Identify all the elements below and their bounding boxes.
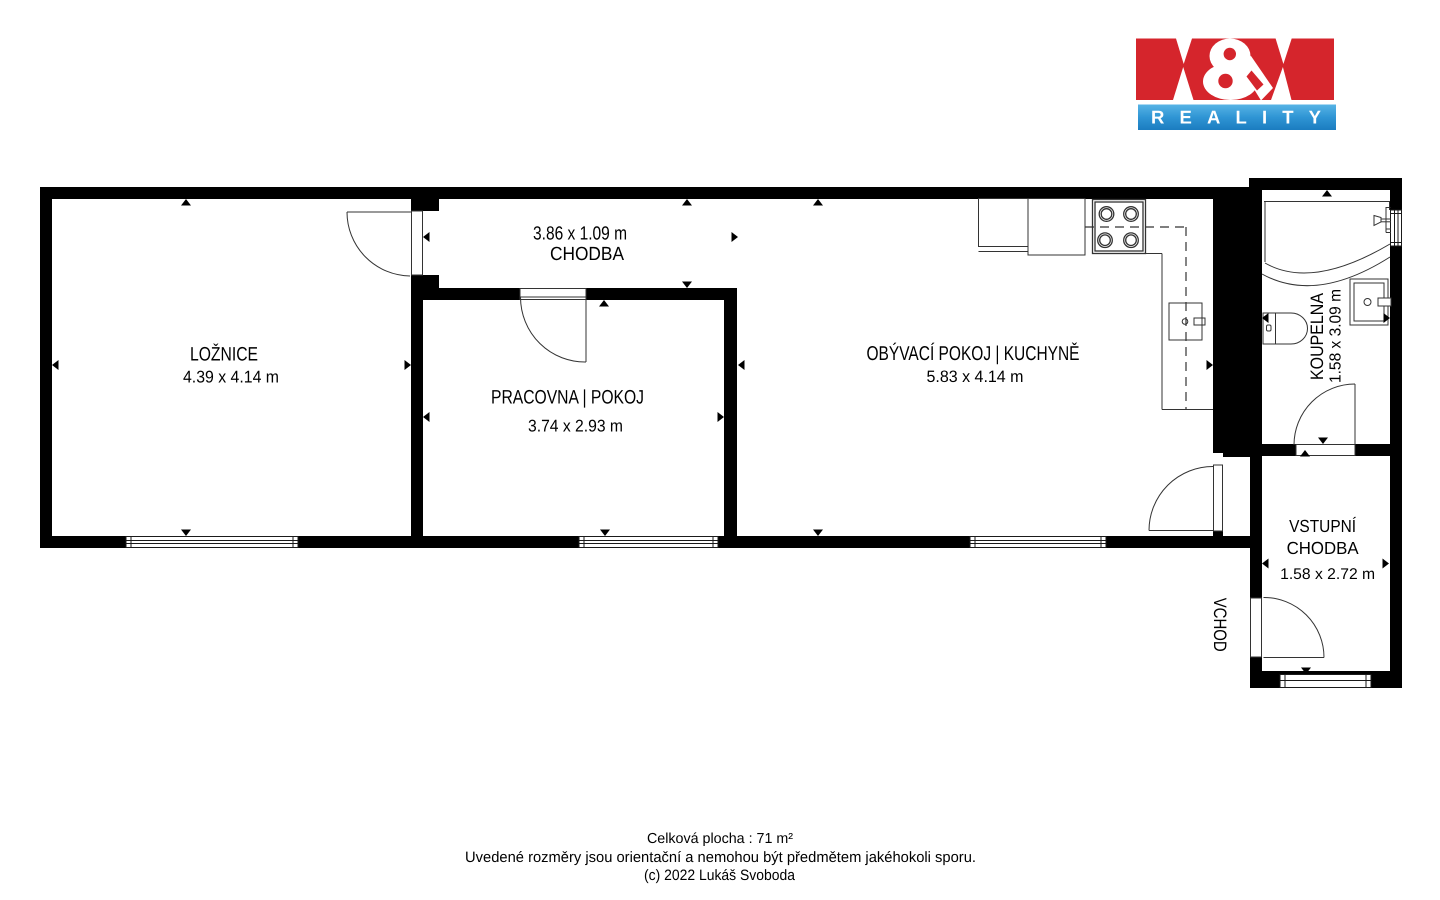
svg-text:(c) 2022 Lukáš Svoboda: (c) 2022 Lukáš Svoboda	[644, 867, 796, 884]
svg-text:VCHOD: VCHOD	[1210, 598, 1230, 652]
svg-text:Celková plocha : 71 m²: Celková plocha : 71 m²	[647, 831, 793, 847]
svg-text:Uvedené rozměry jsou orientačn: Uvedené rozměry jsou orientační a nemoho…	[465, 849, 976, 866]
svg-text:LOŽNICE: LOŽNICE	[190, 343, 258, 366]
svg-text:PRACOVNA | POKOJ: PRACOVNA | POKOJ	[491, 387, 644, 409]
svg-text:CHODBA: CHODBA	[1287, 538, 1359, 558]
svg-text:3.74 x 2.93 m: 3.74 x 2.93 m	[528, 416, 623, 435]
svg-text:1.58 x 3.09 m: 1.58 x 3.09 m	[1328, 289, 1345, 383]
svg-text:4.39 x 4.14 m: 4.39 x 4.14 m	[183, 367, 279, 386]
svg-text:5.83 x 4.14 m: 5.83 x 4.14 m	[927, 368, 1024, 386]
svg-text:1.58 x 2.72 m: 1.58 x 2.72 m	[1280, 566, 1375, 583]
svg-text:KOUPELNA: KOUPELNA	[1307, 293, 1327, 380]
svg-text:3.86 x 1.09 m: 3.86 x 1.09 m	[533, 223, 627, 244]
svg-text:OBÝVACÍ POKOJ | KUCHYNĚ: OBÝVACÍ POKOJ | KUCHYNĚ	[867, 342, 1080, 365]
svg-text:CHODBA: CHODBA	[550, 244, 624, 265]
svg-text:VSTUPNÍ: VSTUPNÍ	[1289, 516, 1356, 536]
